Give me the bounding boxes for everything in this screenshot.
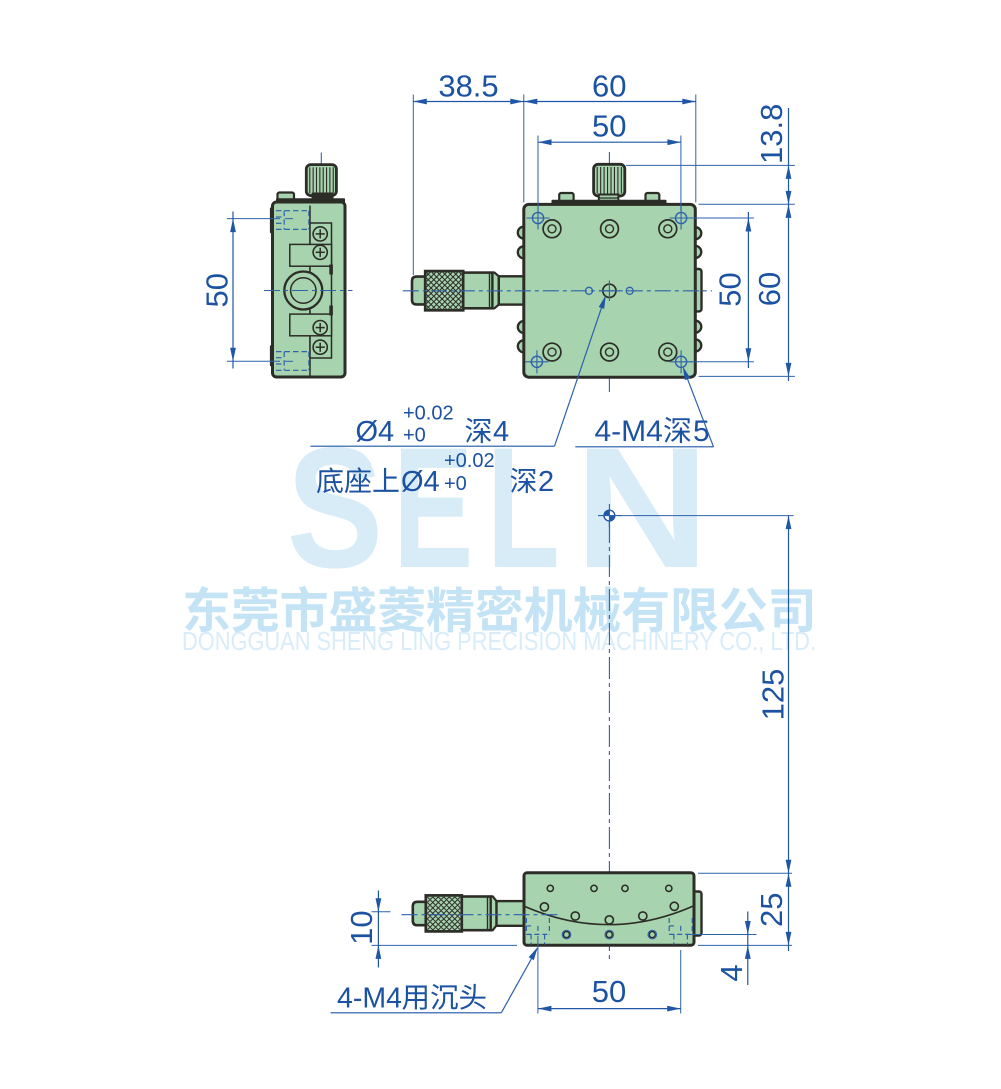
svg-text:50: 50 xyxy=(712,272,747,306)
svg-text:50: 50 xyxy=(592,974,626,1009)
svg-text:25: 25 xyxy=(754,892,789,926)
svg-text:38.5: 38.5 xyxy=(438,69,498,104)
svg-text:+0.02: +0.02 xyxy=(403,403,454,425)
svg-text:+0: +0 xyxy=(444,473,467,495)
svg-text:125: 125 xyxy=(756,669,791,721)
svg-text:DONGGUAN SHENG LING PRECISION: DONGGUAN SHENG LING PRECISION MACHINERY … xyxy=(182,626,816,656)
svg-text:2: 2 xyxy=(538,466,554,498)
svg-text:4-M4: 4-M4 xyxy=(337,983,402,1015)
svg-text:Ø4: Ø4 xyxy=(356,416,395,448)
svg-text:60: 60 xyxy=(592,69,626,104)
svg-text:50: 50 xyxy=(200,273,235,307)
svg-text:Ø4: Ø4 xyxy=(401,466,440,498)
svg-text:4: 4 xyxy=(493,416,509,448)
svg-text:50: 50 xyxy=(592,109,626,144)
svg-text:+0.02: +0.02 xyxy=(444,450,495,472)
svg-text:60: 60 xyxy=(752,272,787,306)
svg-text:4: 4 xyxy=(714,964,749,981)
svg-text:+0: +0 xyxy=(403,425,426,447)
svg-text:13.8: 13.8 xyxy=(754,104,789,164)
svg-text:10: 10 xyxy=(344,910,379,944)
svg-text:4-M4: 4-M4 xyxy=(595,415,663,448)
